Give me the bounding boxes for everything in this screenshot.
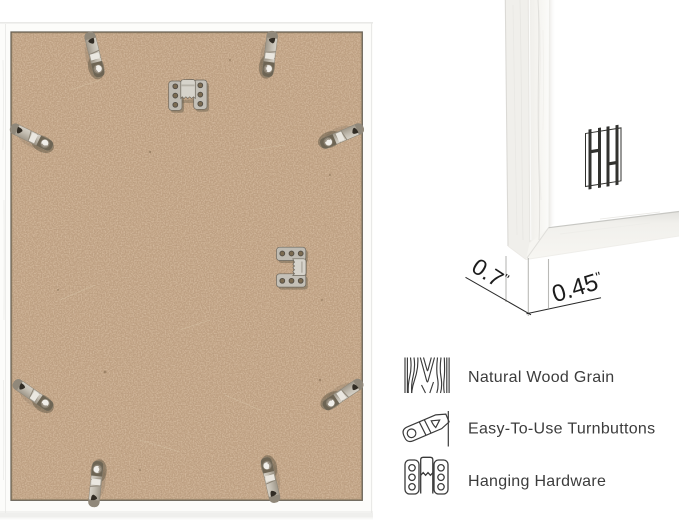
svg-text:0.45": 0.45" [549, 267, 606, 308]
svg-text:Natural Wood Grain: Natural Wood Grain [468, 369, 615, 386]
svg-text:Easy-To-Use Turnbuttons: Easy-To-Use Turnbuttons [468, 421, 655, 438]
svg-text:Hanging Hardware: Hanging Hardware [468, 473, 606, 490]
